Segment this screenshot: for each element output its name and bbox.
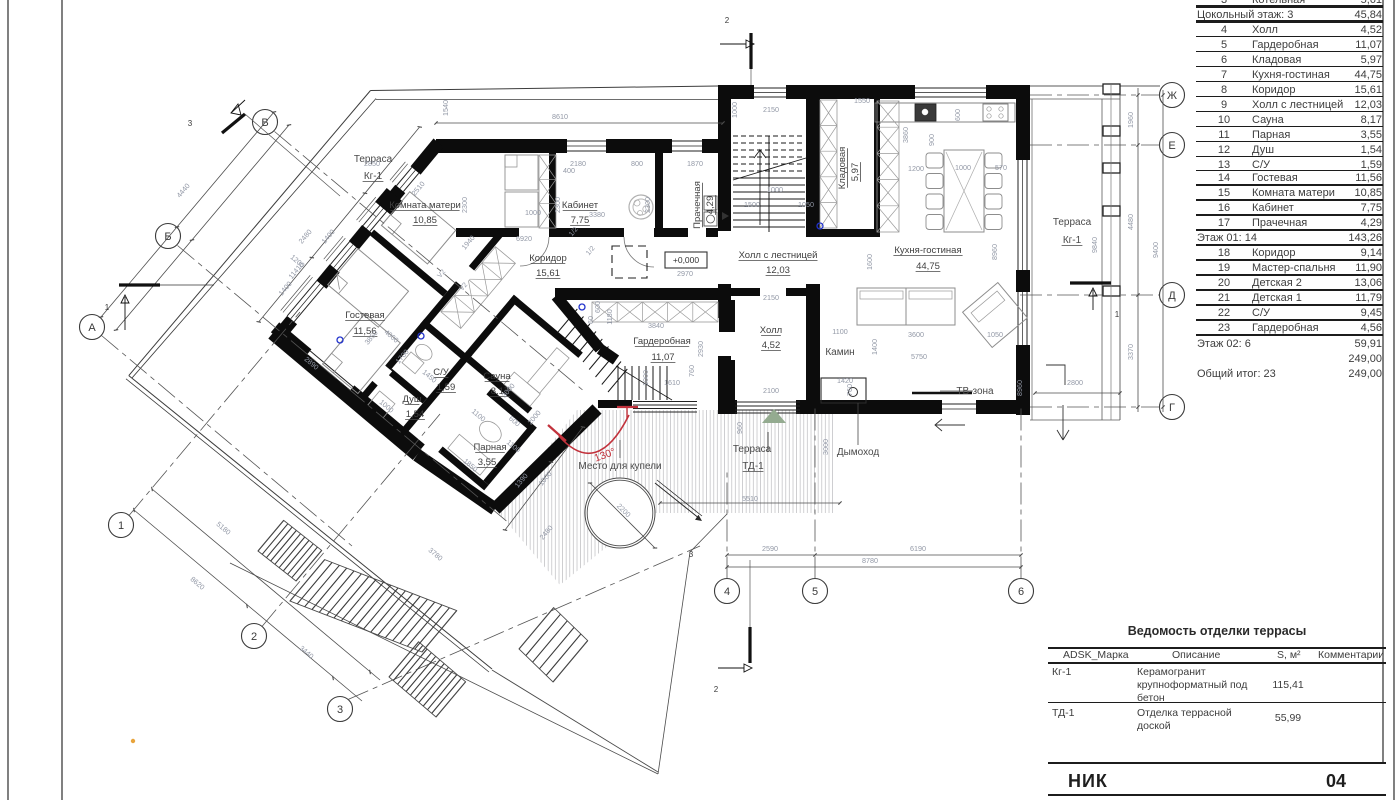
- svg-text:2: 2: [725, 16, 730, 25]
- svg-text:2150: 2150: [763, 293, 779, 302]
- svg-text:Гардеробная: Гардеробная: [633, 336, 690, 347]
- svg-text:1,59: 1,59: [437, 382, 456, 393]
- svg-text:6190: 6190: [910, 544, 926, 553]
- svg-text:600: 600: [593, 301, 602, 313]
- svg-text:1/2: 1/2: [585, 245, 597, 257]
- svg-text:1: 1: [105, 303, 110, 312]
- svg-text:4000: 4000: [383, 327, 401, 344]
- svg-text:1400: 1400: [870, 339, 879, 355]
- svg-text:2970: 2970: [677, 269, 693, 278]
- svg-text:Сауна: Сауна: [483, 371, 511, 382]
- svg-text:2300: 2300: [460, 197, 469, 213]
- svg-text:Кладовая: Кладовая: [837, 147, 848, 190]
- svg-text:7,75: 7,75: [571, 215, 590, 226]
- svg-text:5750: 5750: [911, 352, 927, 361]
- svg-text:2100: 2100: [763, 386, 779, 395]
- svg-text:10,85: 10,85: [413, 215, 437, 226]
- svg-text:А: А: [88, 322, 96, 334]
- svg-text:Кухня-гостиная: Кухня-гостиная: [894, 245, 961, 256]
- svg-text:Кг-1: Кг-1: [1063, 235, 1082, 246]
- svg-text:Комната матери: Комната матери: [389, 200, 461, 211]
- svg-text:3600: 3600: [908, 330, 924, 339]
- svg-text:1000: 1000: [955, 163, 971, 172]
- svg-text:Е: Е: [1168, 140, 1175, 152]
- svg-text:9840: 9840: [1090, 237, 1099, 253]
- svg-text:2930: 2930: [696, 341, 705, 357]
- svg-text:1610: 1610: [664, 378, 680, 387]
- svg-text:2800: 2800: [1067, 378, 1083, 387]
- svg-text:Место для купели: Место для купели: [578, 461, 661, 472]
- svg-text:3: 3: [188, 119, 193, 128]
- svg-text:1100: 1100: [832, 327, 847, 336]
- svg-text:1540: 1540: [441, 100, 450, 116]
- svg-text:Парная: Парная: [473, 442, 506, 453]
- svg-text:570: 570: [995, 163, 1007, 172]
- svg-text:1200: 1200: [908, 164, 924, 173]
- svg-text:Коридор: Коридор: [529, 253, 567, 264]
- svg-text:4: 4: [724, 586, 730, 598]
- svg-text:8620: 8620: [189, 574, 207, 591]
- svg-text:400: 400: [563, 166, 575, 175]
- svg-text:1550: 1550: [854, 96, 870, 105]
- svg-text:4,29: 4,29: [705, 196, 716, 215]
- svg-text:5: 5: [812, 586, 818, 598]
- svg-text:1600: 1600: [865, 254, 874, 270]
- svg-text:1000: 1000: [641, 370, 650, 386]
- svg-text:1700: 1700: [393, 347, 410, 365]
- svg-text:Г: Г: [1169, 402, 1175, 414]
- svg-text:8960: 8960: [990, 244, 999, 260]
- svg-text:3,55: 3,55: [478, 457, 497, 468]
- svg-text:Дымоход: Дымоход: [837, 447, 880, 458]
- svg-text:2590: 2590: [762, 544, 778, 553]
- svg-text:1000: 1000: [525, 208, 541, 217]
- svg-text:1050: 1050: [798, 200, 814, 209]
- svg-text:60: 60: [586, 316, 595, 324]
- svg-text:9400: 9400: [1151, 242, 1160, 258]
- svg-text:Терраса: Терраса: [733, 444, 772, 455]
- svg-text:ТД-1: ТД-1: [742, 461, 764, 472]
- svg-text:2150: 2150: [763, 105, 779, 114]
- svg-text:Прачечная: Прачечная: [692, 181, 703, 229]
- svg-text:1870: 1870: [687, 159, 703, 168]
- svg-text:760: 760: [687, 365, 696, 377]
- svg-text:3370: 3370: [1126, 344, 1135, 360]
- svg-text:6920: 6920: [516, 234, 532, 243]
- svg-text:8610: 8610: [552, 112, 568, 121]
- svg-text:5,97: 5,97: [850, 163, 861, 182]
- svg-text:5180: 5180: [215, 519, 233, 536]
- svg-text:8780: 8780: [862, 556, 878, 565]
- svg-text:V2: V2: [436, 268, 447, 279]
- svg-text:6: 6: [1018, 586, 1024, 598]
- svg-text:ТВ-зона: ТВ-зона: [956, 386, 994, 397]
- svg-text:4440: 4440: [174, 181, 191, 199]
- svg-text:1050: 1050: [987, 330, 1003, 339]
- svg-text:1180: 1180: [605, 309, 614, 324]
- svg-text:900: 900: [927, 134, 936, 146]
- svg-text:960: 960: [735, 422, 744, 434]
- svg-text:5510: 5510: [742, 494, 758, 503]
- svg-text:1000: 1000: [767, 185, 783, 194]
- svg-text:1: 1: [1115, 310, 1120, 319]
- svg-text:Холл: Холл: [760, 325, 782, 336]
- svg-text:2850: 2850: [364, 159, 380, 168]
- svg-text:1: 1: [118, 520, 124, 532]
- svg-text:8960: 8960: [1015, 380, 1024, 396]
- svg-text:1000: 1000: [730, 102, 739, 118]
- svg-text:Д: Д: [1168, 290, 1176, 302]
- svg-text:800: 800: [631, 159, 643, 168]
- svg-text:1420: 1420: [837, 376, 853, 385]
- svg-text:+0,000: +0,000: [673, 255, 700, 265]
- svg-text:Камин: Камин: [825, 347, 854, 358]
- svg-text:44,75: 44,75: [916, 261, 940, 272]
- svg-text:11,07: 11,07: [651, 352, 674, 363]
- svg-text:2300: 2300: [643, 197, 652, 213]
- svg-text:3840: 3840: [648, 321, 664, 330]
- svg-text:Душ: Душ: [402, 394, 421, 405]
- svg-text:1500: 1500: [744, 200, 760, 209]
- svg-text:760: 760: [845, 384, 854, 396]
- svg-text:3000: 3000: [821, 439, 830, 455]
- svg-text:2480: 2480: [296, 227, 313, 245]
- svg-text:2: 2: [714, 685, 719, 694]
- svg-text:1,54: 1,54: [406, 409, 425, 420]
- svg-text:3380: 3380: [589, 210, 605, 219]
- svg-text:600: 600: [953, 109, 962, 121]
- svg-text:15,61: 15,61: [536, 268, 560, 279]
- svg-text:Холл с лестницей: Холл с лестницей: [739, 250, 818, 261]
- svg-text:Терраса: Терраса: [1053, 217, 1092, 228]
- svg-text:4,52: 4,52: [762, 340, 781, 351]
- svg-text:12,03: 12,03: [766, 265, 790, 276]
- svg-text:Ж: Ж: [1167, 90, 1177, 102]
- svg-text:3: 3: [337, 704, 343, 716]
- svg-text:4480: 4480: [1126, 214, 1135, 230]
- svg-text:3780: 3780: [427, 545, 445, 562]
- svg-text:Кг-1: Кг-1: [364, 171, 383, 182]
- svg-text:1960: 1960: [1126, 112, 1135, 128]
- svg-text:3860: 3860: [901, 127, 910, 143]
- svg-text:2: 2: [251, 631, 257, 643]
- svg-text:2300: 2300: [553, 197, 562, 213]
- svg-text:1100: 1100: [470, 407, 488, 424]
- svg-text:3440: 3440: [298, 643, 316, 660]
- svg-text:Гостевая: Гостевая: [345, 310, 384, 321]
